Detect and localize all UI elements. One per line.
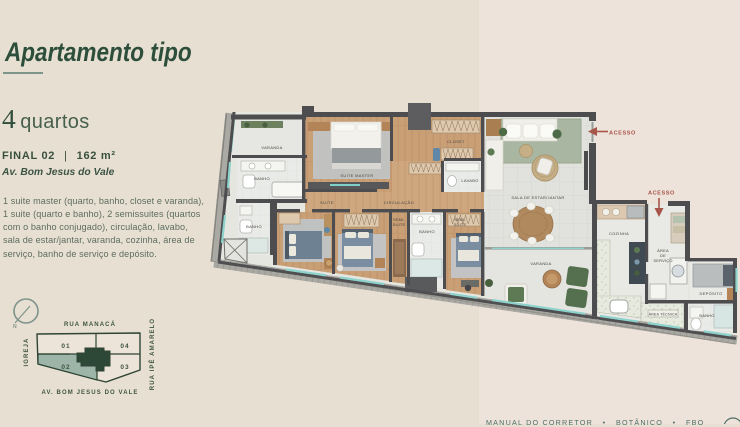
svg-text:SUITE: SUITE (320, 200, 334, 205)
svg-text:SUITE: SUITE (454, 222, 467, 227)
svg-text:BANHO: BANHO (246, 224, 262, 229)
svg-text:BANHO: BANHO (419, 229, 435, 234)
svg-text:SALA DE ESTAR/JANTAR: SALA DE ESTAR/JANTAR (511, 195, 564, 200)
svg-text:SUITE MASTER: SUITE MASTER (340, 173, 373, 178)
svg-text:DEPÓSITO: DEPÓSITO (700, 291, 723, 296)
svg-text:VARANDA: VARANDA (530, 261, 551, 266)
svg-text:SUITE: SUITE (393, 222, 406, 227)
svg-text:COZINHA: COZINHA (609, 231, 629, 236)
svg-text:CIRCULAÇÃO: CIRCULAÇÃO (384, 200, 414, 205)
svg-text:CLOSET: CLOSET (447, 139, 465, 144)
svg-text:SERVIÇO: SERVIÇO (653, 258, 672, 263)
svg-text:LAVABO: LAVABO (461, 178, 478, 183)
svg-text:ACESSO: ACESSO (648, 191, 675, 197)
svg-text:BANHO: BANHO (254, 176, 270, 181)
svg-text:BANHO: BANHO (699, 313, 714, 318)
svg-text:ÁREA TÉCNICA: ÁREA TÉCNICA (649, 312, 678, 317)
svg-text:ACESSO: ACESSO (609, 131, 636, 137)
svg-text:VARANDA: VARANDA (261, 145, 282, 150)
